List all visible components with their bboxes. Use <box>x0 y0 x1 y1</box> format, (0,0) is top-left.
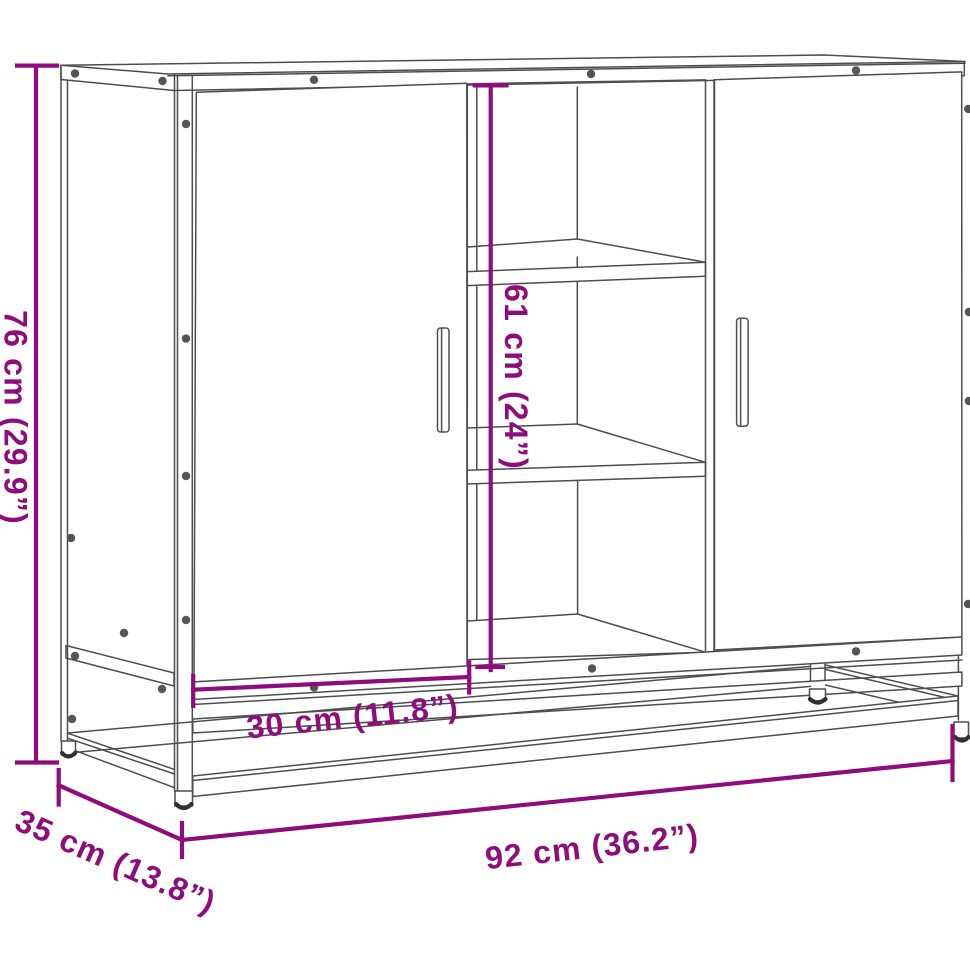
svg-text:61 cm (24”): 61 cm (24”) <box>498 284 534 470</box>
svg-text:76 cm (29.9”): 76 cm (29.9”) <box>0 310 34 525</box>
